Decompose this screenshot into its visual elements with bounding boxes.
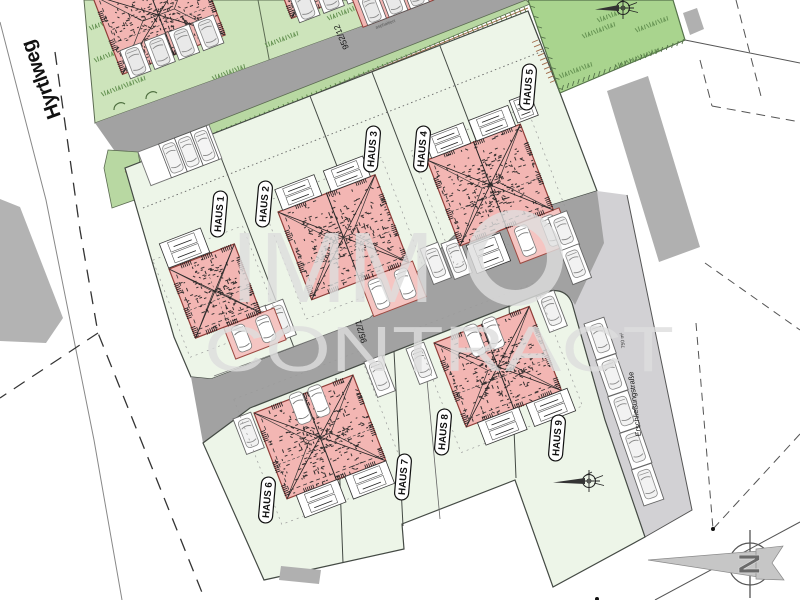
svg-text:N: N xyxy=(732,553,765,575)
svg-text:IMM: IMM xyxy=(230,212,435,324)
svg-text:CONTRACT: CONTRACT xyxy=(204,313,674,385)
